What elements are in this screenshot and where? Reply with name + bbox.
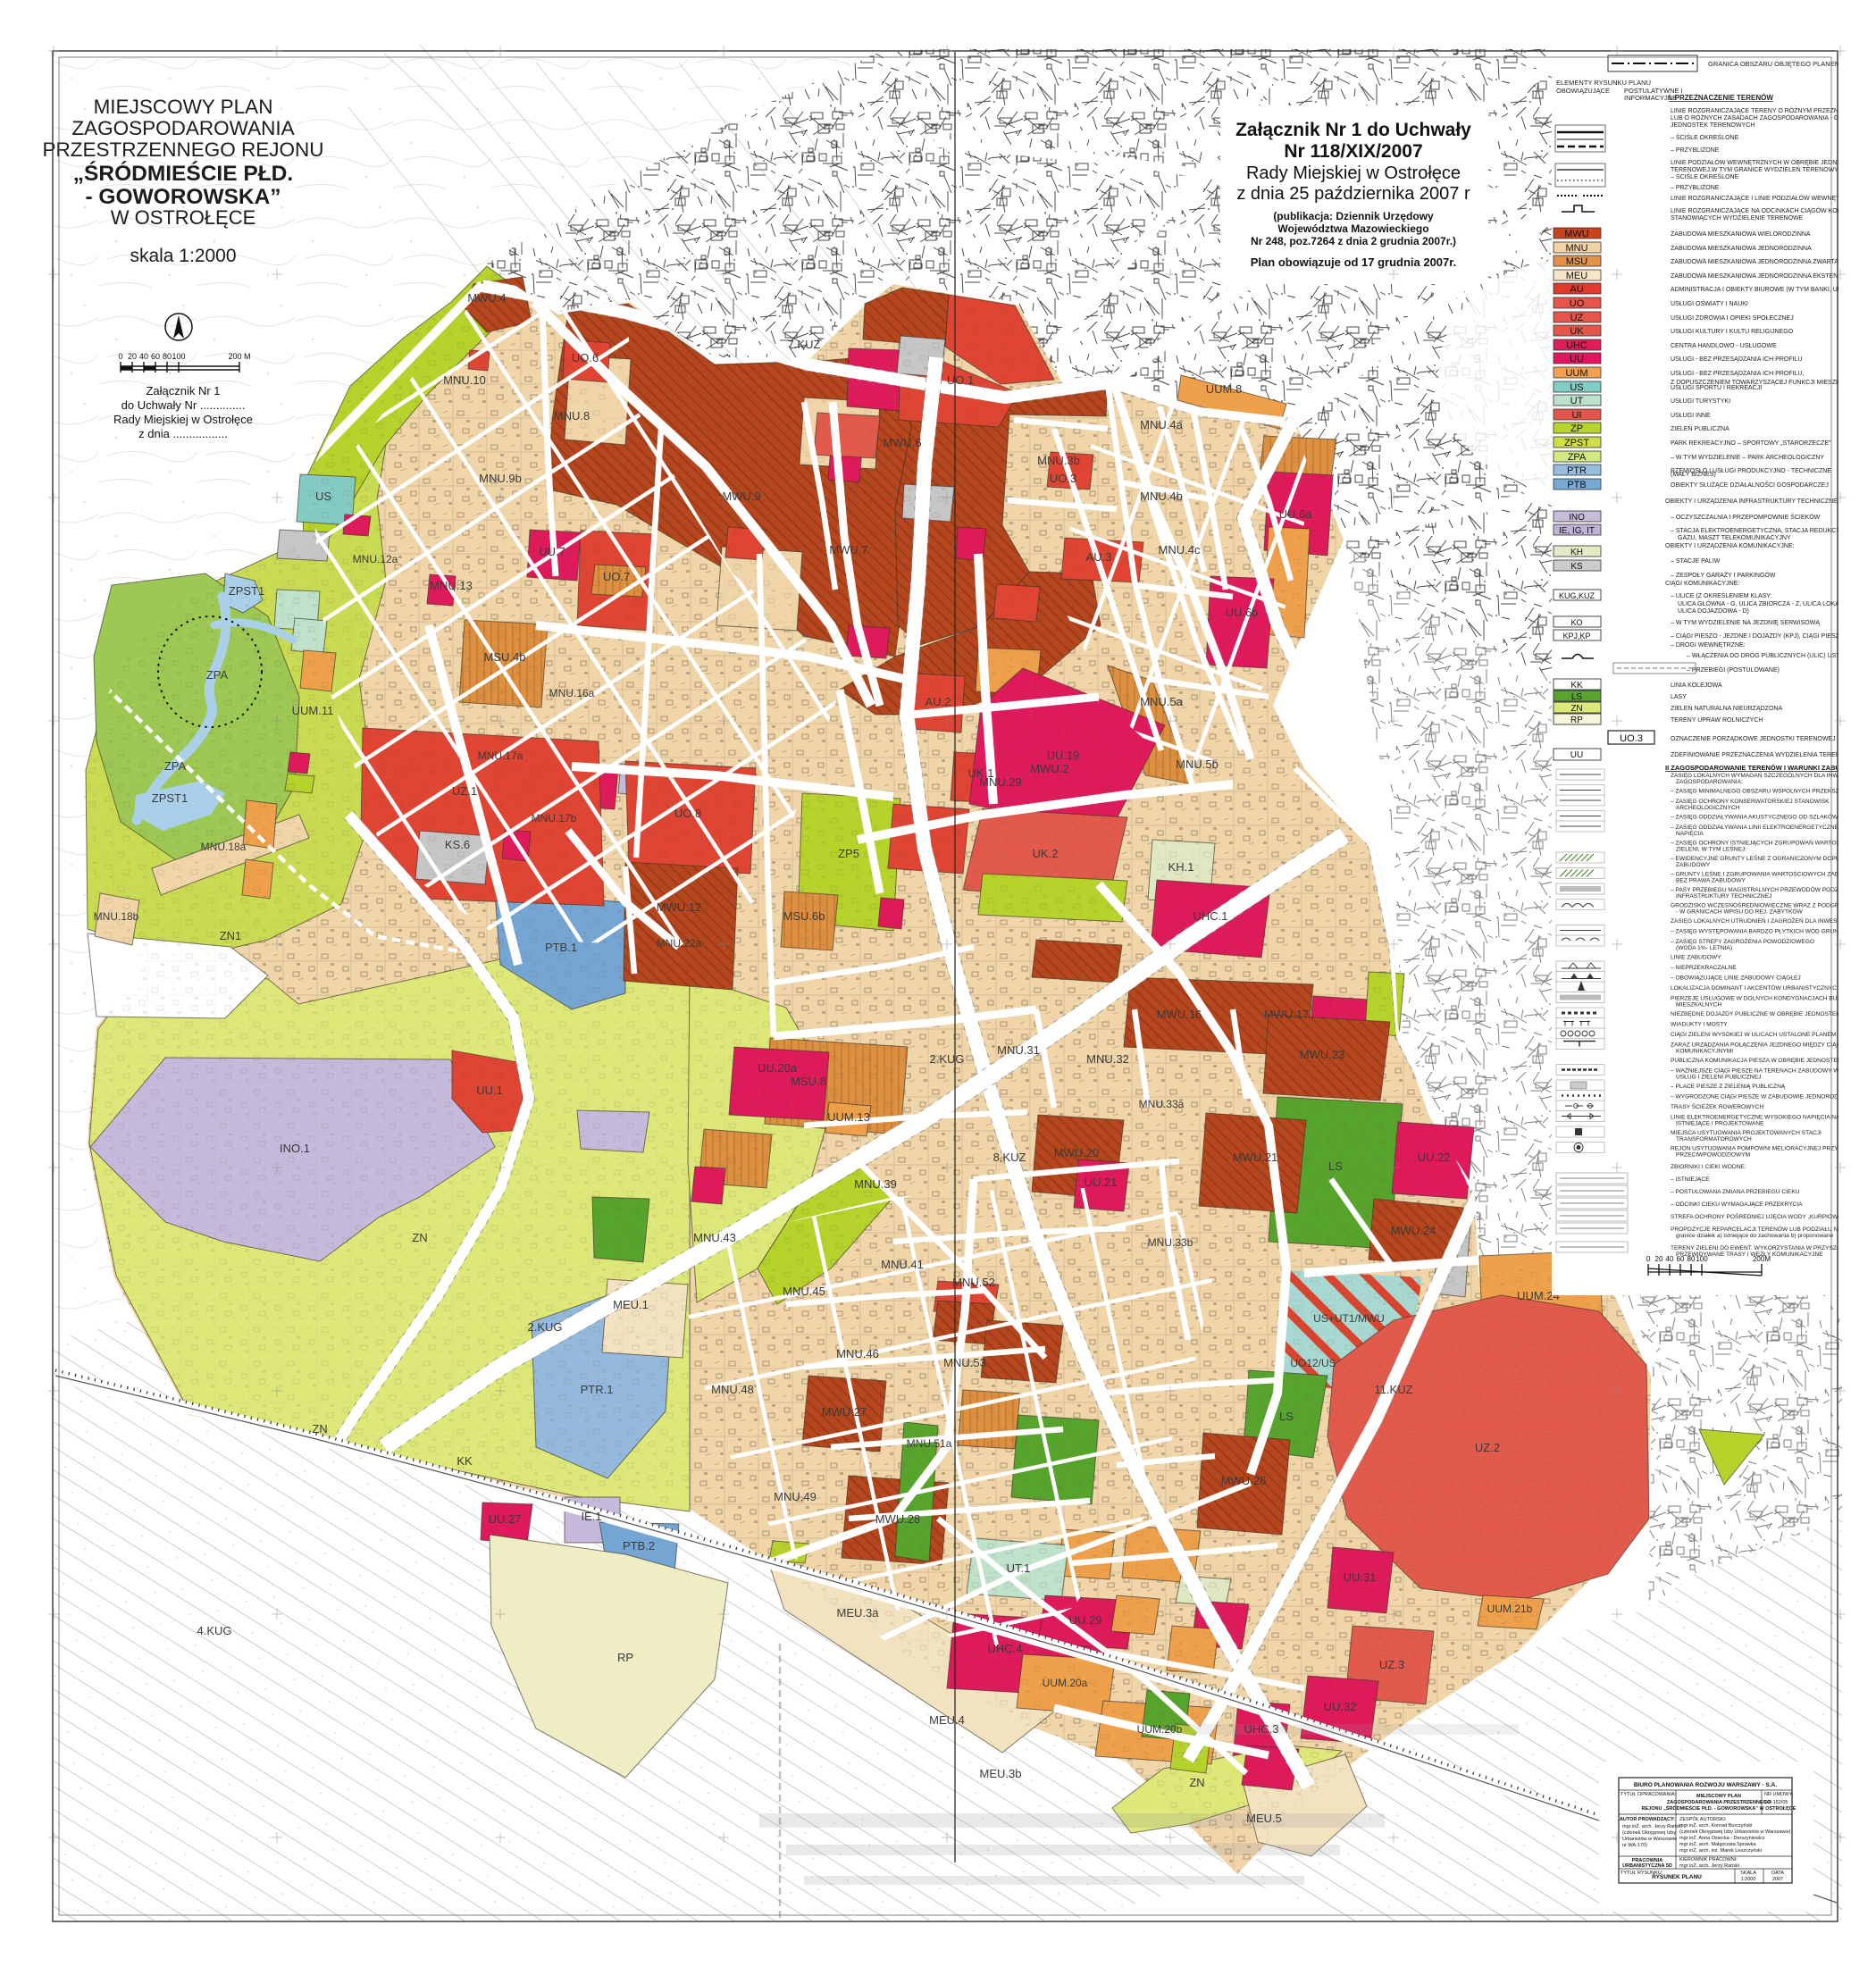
svg-text:UI: UI <box>1572 410 1582 421</box>
svg-text:– NIEPRZEKRACZALNE: – NIEPRZEKRACZALNE <box>1671 965 1737 971</box>
svg-text:UUM: UUM <box>1565 368 1587 379</box>
svg-text:USŁUGI SPORTU I REKREACJI: USŁUGI SPORTU I REKREACJI <box>1671 385 1762 391</box>
svg-text:PTR: PTR <box>1567 465 1587 476</box>
svg-text:LINIA KOLEJOWA: LINIA KOLEJOWA <box>1671 682 1722 689</box>
svg-text:Rady Miejskiej w Ostrołęce: Rady Miejskiej w Ostrołęce <box>1246 163 1461 183</box>
svg-text:ZN: ZN <box>1189 1776 1204 1789</box>
svg-text:ULICA GŁÓWNA - G, ULICA ZBIORC: ULICA GŁÓWNA - G, ULICA ZBIORCZA - Z, UL… <box>1678 599 1862 607</box>
svg-text:USŁUGI OŚWIATY I NAUKI: USŁUGI OŚWIATY I NAUKI <box>1671 299 1748 307</box>
svg-text:US+UT1/MWU: US+UT1/MWU <box>1313 1312 1385 1325</box>
svg-text:ISTNIEJĄCE I PROJEKTOWANE: ISTNIEJĄCE I PROJEKTOWANE <box>1676 1121 1764 1127</box>
svg-text:MWU.2: MWU.2 <box>1030 762 1068 775</box>
svg-text:UUM.11: UUM.11 <box>292 704 334 717</box>
svg-text:UHC: UHC <box>1566 340 1587 351</box>
svg-text:ZN: ZN <box>312 1422 327 1435</box>
svg-text:mgr inŻ. arch. Konrad Burczyńs: mgr inŻ. arch. Konrad Burczyński <box>1679 1822 1752 1829</box>
svg-text:ZP5: ZP5 <box>838 847 859 860</box>
svg-text:40: 40 <box>1666 1255 1674 1263</box>
svg-text:MNU.53: MNU.53 <box>943 1356 986 1369</box>
svg-text:(członek Okręgowej Izby: (członek Okręgowej Izby <box>1622 1830 1676 1836</box>
svg-text:GAZU, MASZT TELEKOMUNIKACYJNY: GAZU, MASZT TELEKOMUNIKACYJNY <box>1678 535 1791 541</box>
svg-text:nr WA-170): nr WA-170) <box>1622 1843 1647 1848</box>
svg-text:KH.1: KH.1 <box>1168 860 1194 874</box>
svg-text:CIĄGI ZIELENI WYSOKIEJ W ULICA: CIĄGI ZIELENI WYSOKIEJ W ULICACH USTALON… <box>1671 1032 1836 1038</box>
svg-text:Plan obowiązuje od 17 grudnia: Plan obowiązuje od 17 grudnia 2007r. <box>1251 255 1456 269</box>
svg-text:– ZASIĘG STREFY ZAGROŻENIA POW: – ZASIĘG STREFY ZAGROŻENIA POWODZIOWEGO <box>1671 937 1814 945</box>
svg-text:MNU.32: MNU.32 <box>1086 1052 1129 1066</box>
svg-text:– ŚCIŚLE OKREŚLONE: – ŚCIŚLE OKREŚLONE <box>1671 172 1739 180</box>
svg-text:– ULICE (Z OKREŚLENIEM KLASY:: – ULICE (Z OKREŚLENIEM KLASY: <box>1671 591 1772 599</box>
svg-text:USŁUGI TURYSTYKI: USŁUGI TURYSTYKI <box>1671 398 1730 405</box>
svg-text:UU: UU <box>1570 750 1583 760</box>
svg-text:1:2000: 1:2000 <box>1741 1877 1756 1882</box>
svg-text:LINIE ZABUDOWY:: LINIE ZABUDOWY: <box>1671 955 1722 961</box>
svg-text:ZASIĘG LOKALNYCH UTRUDNIEŃ I Z: ZASIĘG LOKALNYCH UTRUDNIEŃ I ZAGROŻEŃ DL… <box>1671 917 1864 925</box>
svg-text:– PRZYBLIŻONE: – PRZYBLIŻONE <box>1671 146 1720 154</box>
svg-text:– PRZEBIEGI (POSTULOWANE): – PRZEBIEGI (POSTULOWANE) <box>1687 667 1780 674</box>
svg-text:MNU.52: MNU.52 <box>952 1276 995 1289</box>
svg-text:KK: KK <box>1570 681 1583 691</box>
svg-text:ELEMENTY RYSUNKU PLANU: ELEMENTY RYSUNKU PLANU <box>1556 79 1651 87</box>
svg-text:NR UMOWY:: NR UMOWY: <box>1764 1792 1794 1797</box>
svg-text:KUG,KUZ: KUG,KUZ <box>1559 591 1595 600</box>
svg-text:RP: RP <box>617 1651 633 1664</box>
svg-text:ZIELEŃ NATURALNA NIEURZĄDZONA: ZIELEŃ NATURALNA NIEURZĄDZONA <box>1671 704 1782 712</box>
svg-text:UU.19: UU.19 <box>1047 749 1080 762</box>
svg-text:PTB.1: PTB.1 <box>545 941 577 954</box>
svg-text:MWU: MWU <box>1564 229 1589 239</box>
svg-text:MNU.33b: MNU.33b <box>1148 1236 1193 1249</box>
svg-text:INFRASTRUKTURY TECHNICZNEJ: INFRASTRUKTURY TECHNICZNEJ <box>1676 893 1771 900</box>
svg-text:80: 80 <box>1688 1255 1696 1263</box>
svg-text:PRZECIWPOWODZIOWYM: PRZECIWPOWODZIOWYM <box>1676 1152 1750 1159</box>
svg-text:UK: UK <box>1570 326 1584 337</box>
svg-text:MNU.4a: MNU.4a <box>1140 418 1183 431</box>
svg-text:– ZASIĘG OCHRONY KONSERWATORSK: – ZASIĘG OCHRONY KONSERWATORSKIEJ STANOW… <box>1671 799 1830 805</box>
svg-text:UT.1: UT.1 <box>1007 1561 1031 1575</box>
svg-text:ULICA DOJAZDOWA - D): ULICA DOJAZDOWA - D) <box>1678 608 1749 615</box>
svg-text:MNU.45: MNU.45 <box>783 1285 825 1298</box>
svg-text:SKALA: SKALA <box>1740 1871 1756 1876</box>
svg-text:UHC.3: UHC.3 <box>1244 1722 1278 1736</box>
svg-text:TERENOWEJ,W TYM GRANICE WYDZIE: TERENOWEJ,W TYM GRANICE WYDZIELEŃ TERENO… <box>1671 165 1849 173</box>
svg-text:ZPA: ZPA <box>206 668 229 682</box>
svg-text:MNU.4c: MNU.4c <box>1159 543 1201 557</box>
svg-text:granice działek a) istniejące: granice działek a) istniejące do zachowa… <box>1676 1233 1834 1239</box>
svg-text:LS: LS <box>1328 1159 1343 1173</box>
svg-text:UO.7: UO.7 <box>603 570 630 583</box>
svg-text:ZPA: ZPA <box>1568 452 1587 463</box>
svg-text:LINIE PODZIAŁÓW WEWNĘTRZNYCH W: LINIE PODZIAŁÓW WEWNĘTRZNYCH W OBRĘBIE J… <box>1671 158 1855 166</box>
svg-text:UUM.20b: UUM.20b <box>1137 1723 1183 1736</box>
svg-text:MWU.4: MWU.4 <box>467 291 506 305</box>
svg-text:– ZASIĘG WYSTĘPOWANIA BARDZO P: – ZASIĘG WYSTĘPOWANIA BARDZO PŁYTKICH WÓ… <box>1671 927 1864 935</box>
svg-text:0: 0 <box>118 352 122 361</box>
svg-text:USŁUGI KULTURY I KULTU RELIGIJ: USŁUGI KULTURY I KULTU RELIGIJNEGO <box>1671 329 1794 335</box>
svg-text:Załącznik Nr 1 do Uchwały: Załącznik Nr 1 do Uchwały <box>1235 120 1471 140</box>
svg-text:TRASY ŚCIEŻEK ROWEROWYCH: TRASY ŚCIEŻEK ROWEROWYCH <box>1671 1102 1764 1110</box>
svg-text:ZP: ZP <box>1570 423 1583 434</box>
svg-text:Urbanistów w Warszawie: Urbanistów w Warszawie <box>1622 1837 1677 1842</box>
svg-text:MNU.4b: MNU.4b <box>1140 490 1183 503</box>
svg-text:MWU.17: MWU.17 <box>1264 1008 1310 1021</box>
svg-text:MNU.3b: MNU.3b <box>1037 454 1080 467</box>
svg-text:– DROGI WEWNĘTRZNE:: – DROGI WEWNĘTRZNE: <box>1671 642 1746 649</box>
svg-text:ZPST: ZPST <box>1564 438 1589 448</box>
svg-text:STANOWIĄCYCH WYDZIELENIE TEREN: STANOWIĄCYCH WYDZIELENIE TERENOWE <box>1671 215 1804 222</box>
svg-text:MWU.16: MWU.16 <box>1157 1008 1202 1021</box>
svg-text:ZABUDOWA MIESZKANIOWA JEDNOROD: ZABUDOWA MIESZKANIOWA JEDNORODZINNA EKST… <box>1671 273 1861 280</box>
svg-text:mgr inŻ. arch. Małgorzata Spra: mgr inŻ. arch. Małgorzata Sprawka <box>1679 1841 1757 1847</box>
svg-text:MEU.5: MEU.5 <box>1246 1812 1282 1825</box>
svg-text:UT: UT <box>1570 396 1584 406</box>
svg-text:z dnia 25 października 2007 r: z dnia 25 października 2007 r <box>1236 184 1470 204</box>
svg-text:– OBOWIĄZUJĄCE LINIE ZABUDOWY: – OBOWIĄZUJĄCE LINIE ZABUDOWY CIĄGŁEJ <box>1671 975 1801 982</box>
svg-text:– W TYM WYDZIELENIE NA JEZDNIĘ: – W TYM WYDZIELENIE NA JEZDNIĘ SERWISOWĄ <box>1671 620 1820 626</box>
svg-text:– PASY PRZEBIEGU MAGISTRALNYCH: – PASY PRZEBIEGU MAGISTRALNYCH PRZEWODÓW… <box>1671 885 1866 893</box>
svg-text:(publikacja: Dziennik Urzędowy: (publikacja: Dziennik Urzędowy <box>1273 210 1434 222</box>
svg-text:ZABUDOWA MIESZKANIOWA WIELOROD: ZABUDOWA MIESZKANIOWA WIELORODZINNA <box>1671 231 1811 238</box>
svg-text:OBOWIĄZUJĄCE: OBOWIĄZUJĄCE <box>1556 87 1610 95</box>
svg-text:ZAGOSPODAROWANIA: ZAGOSPODAROWANIA <box>71 117 294 139</box>
svg-text:„ŚRÓDMIEŚCIE PŁD.: „ŚRÓDMIEŚCIE PŁD. <box>73 161 293 186</box>
svg-text:MNU: MNU <box>1565 243 1587 254</box>
svg-text:URBANISTYCZNA 5D: URBANISTYCZNA 5D <box>1622 1863 1672 1869</box>
svg-text:200 M: 200 M <box>228 352 250 361</box>
svg-text:REJONU „ŚRÓDMIEŚCIE PŁD. - GOW: REJONU „ŚRÓDMIEŚCIE PŁD. - GOWOROWSKA” W… <box>1642 1804 1796 1812</box>
svg-text:I. PRZEZNACZENIE TERENÓW: I. PRZEZNACZENIE TERENÓW <box>1669 94 1773 102</box>
svg-text:UU.6a: UU.6a <box>1279 507 1313 521</box>
svg-text:MNU.16a: MNU.16a <box>549 687 595 699</box>
svg-text:Załącznik Nr 1: Załącznik Nr 1 <box>146 384 220 398</box>
svg-text:STREFA OCHRONY POŚREDNIEJ UJĘC: STREFA OCHRONY POŚREDNIEJ UJĘCIA WODY „K… <box>1671 1212 1852 1220</box>
svg-text:UO.8: UO.8 <box>674 807 701 820</box>
svg-text:UU.27: UU.27 <box>489 1512 522 1526</box>
svg-text:MNU.46: MNU.46 <box>836 1347 879 1360</box>
svg-text:UU.31: UU.31 <box>1344 1570 1377 1584</box>
svg-text:USŁUGI ZDROWIA I OPIEKI SPOŁEC: USŁUGI ZDROWIA I OPIEKI SPOŁECZNEJ <box>1671 315 1794 322</box>
svg-text:UU.29: UU.29 <box>1069 1613 1102 1627</box>
svg-text:GRANICA OBSZARU OBJĘTEGO PLANE: GRANICA OBSZARU OBJĘTEGO PLANEM <box>1708 60 1840 68</box>
svg-text:MNU.51a: MNU.51a <box>907 1437 952 1450</box>
svg-text:PARK REKREACYJNO – SPORTOWY „S: PARK REKREACYJNO – SPORTOWY „STARORZECZE… <box>1671 440 1831 447</box>
svg-text:UZ.3: UZ.3 <box>1379 1658 1404 1671</box>
svg-text:MNU.41: MNU.41 <box>881 1258 924 1271</box>
svg-text:INO: INO <box>1569 513 1585 523</box>
svg-text:LASY: LASY <box>1671 694 1687 700</box>
svg-text:UU.22: UU.22 <box>1418 1151 1451 1164</box>
svg-text:PTB: PTB <box>1567 480 1586 490</box>
svg-text:UO.6: UO.6 <box>572 351 599 364</box>
svg-text:OBIEKTY SŁUŻĄCE DZIAŁALNOŚCI G: OBIEKTY SŁUŻĄCE DZIAŁALNOŚCI GOSPODARCZE… <box>1671 481 1829 489</box>
svg-text:ZARAZ URZĄDZANIA POŁĄCZENIA JE: ZARAZ URZĄDZANIA POŁĄCZENIA JEZDNEGO MIĘ… <box>1671 1042 1852 1049</box>
svg-text:OBIEKTY I URZĄDZENIA INFRASTRU: OBIEKTY I URZĄDZENIA INFRASTRUKTURY TECH… <box>1665 498 1842 505</box>
svg-text:MNU.22a: MNU.22a <box>657 937 702 950</box>
svg-text:INO.1: INO.1 <box>280 1142 310 1155</box>
svg-text:KH: KH <box>1570 548 1583 557</box>
svg-text:MWU.12: MWU.12 <box>657 900 702 914</box>
svg-text:– CIĄGI PIESZO - JEZDNE I DOJA: – CIĄGI PIESZO - JEZDNE I DOJAZDY (KPJ),… <box>1671 633 1858 640</box>
svg-text:UU.32: UU.32 <box>1324 1700 1357 1713</box>
svg-text:- GOWOROWSKA”: - GOWOROWSKA” <box>85 185 281 209</box>
svg-text:– STACJE PALIW: – STACJE PALIW <box>1671 558 1721 565</box>
svg-text:MNU.5a: MNU.5a <box>1140 695 1183 708</box>
svg-text:USŁUGI INNE: USŁUGI INNE <box>1671 413 1711 419</box>
svg-text:UU.6b: UU.6b <box>1226 606 1259 619</box>
svg-text:100: 100 <box>1696 1255 1708 1263</box>
svg-text:(WODA 1%- LETNIA): (WODA 1%- LETNIA) <box>1676 945 1732 951</box>
svg-text:Rady Miejskiej w Ostrołęce: Rady Miejskiej w Ostrołęce <box>113 413 253 426</box>
svg-text:UO12/US: UO12/US <box>1290 1357 1336 1369</box>
svg-text:100: 100 <box>172 352 185 361</box>
svg-text:ZIELENI, W TYM LEŚNEJ:: ZIELENI, W TYM LEŚNEJ: <box>1676 845 1746 853</box>
svg-text:NAPIĘCIA: NAPIĘCIA <box>1676 831 1704 837</box>
svg-text:MWU.23: MWU.23 <box>1300 1048 1345 1061</box>
svg-text:RP: RP <box>1570 716 1583 725</box>
svg-text:UUM.8: UUM.8 <box>1206 382 1242 396</box>
svg-text:UU.7: UU.7 <box>539 545 565 558</box>
svg-text:UU.21: UU.21 <box>1085 1176 1118 1189</box>
svg-text:MIESZKALNYCH: MIESZKALNYCH <box>1676 1002 1722 1009</box>
svg-text:MWU.27: MWU.27 <box>822 1405 867 1419</box>
svg-text:LS: LS <box>1571 692 1583 702</box>
svg-text:– ZASIĘG OCHRONY ISTNIEJĄCYCH: – ZASIĘG OCHRONY ISTNIEJĄCYCH ZGRUPOWAŃ … <box>1671 839 1863 847</box>
svg-text:MIEJSCOWY PLAN: MIEJSCOWY PLAN <box>94 96 273 118</box>
svg-text:UU.1: UU.1 <box>476 1084 503 1097</box>
svg-text:AU.3: AU.3 <box>1086 550 1112 564</box>
svg-text:MNU.49: MNU.49 <box>774 1490 817 1503</box>
svg-text:ZPST1: ZPST1 <box>152 791 188 805</box>
svg-text:PRZESTRZENNEGO REJONU: PRZESTRZENNEGO REJONU <box>42 138 323 161</box>
svg-text:MNU.5b: MNU.5b <box>1176 758 1219 771</box>
svg-text:MNU.12a: MNU.12a <box>353 553 398 565</box>
svg-text:ZDEFINIOWANIE PRZEZNACZENIA WY: ZDEFINIOWANIE PRZEZNACZENIA WYDZIELENIA … <box>1671 752 1865 758</box>
svg-text:MEU.3b: MEU.3b <box>980 1767 1022 1780</box>
svg-text:UHC.4: UHC.4 <box>987 1642 1022 1655</box>
svg-text:UUM.20a: UUM.20a <box>1043 1677 1088 1689</box>
svg-text:KS.6: KS.6 <box>445 838 470 851</box>
svg-text:MIEJSCA USYTUOWANIA PROJEKTOWA: MIEJSCA USYTUOWANIA PROJEKTOWANYCH STACJ… <box>1671 1130 1822 1136</box>
svg-text:MEU.3a: MEU.3a <box>837 1606 880 1620</box>
svg-text:– PLACE PIESZE Z ZIELENIĄ PUBL: – PLACE PIESZE Z ZIELENIĄ PUBLICZNĄ <box>1671 1084 1786 1090</box>
svg-text:MEU.1: MEU.1 <box>613 1298 649 1311</box>
svg-text:ZABUDOWA MIESZKANIOWA JEDNOROD: ZABUDOWA MIESZKANIOWA JEDNORODZINNA <box>1671 246 1812 252</box>
svg-text:MWU.28: MWU.28 <box>875 1512 921 1526</box>
svg-text:KIEROWNIK PRACOWNI:: KIEROWNIK PRACOWNI: <box>1679 1857 1738 1862</box>
svg-text:z dnia .................: z dnia ................. <box>138 427 228 440</box>
svg-text:MNU.33a: MNU.33a <box>1139 1098 1185 1110</box>
svg-text:– W TYM WYDZIELENIE – PARK ARC: – W TYM WYDZIELENIE – PARK ARCHEOLOGICZN… <box>1671 455 1824 461</box>
svg-text:mgr inŻ. arch. inż. Marek Lesz: mgr inŻ. arch. inż. Marek Leszczyński <box>1679 1847 1762 1854</box>
svg-text:2007: 2007 <box>1772 1877 1783 1882</box>
svg-text:60: 60 <box>151 352 160 361</box>
svg-text:UU.20a: UU.20a <box>758 1061 798 1075</box>
svg-text:20: 20 <box>1655 1255 1663 1263</box>
svg-text:ZN1: ZN1 <box>220 929 242 942</box>
svg-text:UO.3: UO.3 <box>1620 733 1643 744</box>
svg-text:AU.2: AU.2 <box>925 695 951 708</box>
svg-text:ZPA: ZPA <box>164 759 187 773</box>
svg-text:MIEJSCOWY PLAN: MIEJSCOWY PLAN <box>1696 1794 1741 1799</box>
svg-text:ZN: ZN <box>412 1231 427 1244</box>
svg-text:UZ.2: UZ.2 <box>1475 1441 1500 1454</box>
svg-text:MEU: MEU <box>1566 271 1588 281</box>
svg-text:ZABUDOWA MIESZKANIOWA JEDNOROD: ZABUDOWA MIESZKANIOWA JEDNORODZINNA ZWAR… <box>1671 259 1838 265</box>
svg-text:DATA: DATA <box>1771 1871 1784 1876</box>
svg-text:MNU.31: MNU.31 <box>997 1043 1040 1057</box>
svg-text:Nr 248, poz.7264 z dnia 2 grud: Nr 248, poz.7264 z dnia 2 grudnia 2007r.… <box>1251 235 1456 247</box>
svg-text:MSU.4b: MSU.4b <box>484 650 526 664</box>
svg-text:– ISTNIEJĄCE: – ISTNIEJĄCE <box>1671 1176 1710 1183</box>
svg-text:MNU.17b: MNU.17b <box>532 812 577 824</box>
svg-text:ZESPÓŁ AUTORSKI:: ZESPÓŁ AUTORSKI: <box>1679 1816 1727 1822</box>
svg-text:ZPST1: ZPST1 <box>229 584 264 598</box>
svg-text:TRANSFORMATOROWYCH: TRANSFORMATOROWYCH <box>1676 1136 1752 1143</box>
svg-text:– ŚCIŚLE OKREŚLONE: – ŚCIŚLE OKREŚLONE <box>1671 133 1739 141</box>
svg-text:MNU.48: MNU.48 <box>711 1383 754 1396</box>
svg-text:BIURO PLANOWANIA ROZWOJU WARSZ: BIURO PLANOWANIA ROZWOJU WARSZAWY - S.A. <box>1634 1782 1778 1788</box>
svg-text:TYTUŁ OPRACOWANIA:: TYTUŁ OPRACOWANIA: <box>1621 1792 1677 1797</box>
svg-text:8.KUZ: 8.KUZ <box>993 1151 1026 1164</box>
svg-text:TERENY UPRAW ROLNICZYCH: TERENY UPRAW ROLNICZYCH <box>1671 717 1763 724</box>
svg-text:IE, IG, IT: IE, IG, IT <box>1559 526 1595 536</box>
svg-text:0: 0 <box>1646 1255 1651 1263</box>
svg-text:MNU.18b: MNU.18b <box>94 910 139 923</box>
svg-text:40: 40 <box>139 352 148 361</box>
svg-text:- W GRANICACH WPISU DO REJ. ZA: - W GRANICACH WPISU DO REJ. ZABYTKÓW <box>1676 908 1804 916</box>
svg-text:MWU.26: MWU.26 <box>1221 1474 1267 1487</box>
svg-text:2.KUG: 2.KUG <box>929 1052 964 1066</box>
svg-text:MNU.43: MNU.43 <box>693 1231 736 1244</box>
svg-text:US: US <box>315 490 331 503</box>
svg-text:USŁUG I ZIELENI PUBLICZNEJ: USŁUG I ZIELENI PUBLICZNEJ <box>1676 1075 1761 1081</box>
svg-text:ZN: ZN <box>1570 704 1582 714</box>
svg-text:(MAŁY BIZNES): (MAŁY BIZNES) <box>1671 472 1716 478</box>
svg-text:MWU.6: MWU.6 <box>883 436 921 449</box>
svg-text:W OSTROŁĘCE: W OSTROŁĘCE <box>111 206 256 229</box>
svg-text:WIADUKTY I MOSTY: WIADUKTY I MOSTY <box>1671 1022 1728 1028</box>
svg-text:do Uchwały Nr ..............: do Uchwały Nr .............. <box>121 398 246 412</box>
svg-text:Nr 118/XIX/2007: Nr 118/XIX/2007 <box>1284 141 1422 162</box>
svg-text:LS: LS <box>1279 1410 1294 1423</box>
svg-text:ZBIORNIKI I CIEKI WODNE:: ZBIORNIKI I CIEKI WODNE: <box>1671 1164 1746 1170</box>
svg-text:KOMUNIKACYJNYMI: KOMUNIKACYJNYMI <box>1676 1049 1733 1055</box>
svg-text:ZAGOSPODAROWANIA PRZESTRZENNEG: ZAGOSPODAROWANIA PRZESTRZENNEGO <box>1667 1800 1771 1805</box>
svg-text:UK.1: UK.1 <box>968 766 994 780</box>
svg-text:MWU.7: MWU.7 <box>829 543 867 557</box>
svg-text:ARCHEOLOGICZNYCH: ARCHEOLOGICZNYCH <box>1676 805 1740 811</box>
svg-text:USŁUGI - BEZ PRZESĄDZANIA ICH: USŁUGI - BEZ PRZESĄDZANIA ICH PROFILU <box>1671 356 1802 363</box>
svg-text:200M: 200M <box>1753 1255 1771 1263</box>
svg-text:IE.1: IE.1 <box>581 1510 601 1523</box>
svg-text:mgr inŻ. Anna Osiecka - Derszy: mgr inŻ. Anna Osiecka - Derszyniewicz <box>1679 1835 1765 1841</box>
svg-text:Województwa Mazowieckiego: Województwa Mazowieckiego <box>1277 222 1428 235</box>
svg-text:UZ: UZ <box>1570 313 1584 323</box>
svg-text:UO: UO <box>1570 298 1585 309</box>
svg-text:MSU: MSU <box>1566 256 1588 267</box>
svg-text:US: US <box>1570 382 1583 393</box>
svg-text:4.KUG: 4.KUG <box>197 1624 231 1637</box>
svg-text:USŁUGI - BEZ PRZESĄDZANIA ICH: USŁUGI - BEZ PRZESĄDZANIA ICH PROFILU, <box>1671 371 1804 377</box>
svg-text:60: 60 <box>1677 1255 1685 1263</box>
svg-text:MWU.20: MWU.20 <box>1054 1146 1100 1159</box>
svg-text:JEDNOSTEK TERENOWYCH: JEDNOSTEK TERENOWYCH <box>1671 122 1755 129</box>
svg-text:MSU.6b: MSU.6b <box>783 909 825 923</box>
svg-text:ZIELEŃ PUBLICZNA: ZIELEŃ PUBLICZNA <box>1671 424 1729 432</box>
svg-text:KO: KO <box>1570 618 1582 627</box>
svg-text:UO.1: UO.1 <box>947 373 974 387</box>
svg-text:PTB.2: PTB.2 <box>623 1539 655 1553</box>
svg-text:MNU.39: MNU.39 <box>854 1177 897 1191</box>
svg-text:20: 20 <box>128 352 137 361</box>
svg-text:– ODCINKI CIEKU WYMAGAJĄCE PRZ: – ODCINKI CIEKU WYMAGAJĄCE PRZEKRYCIA <box>1671 1201 1803 1208</box>
svg-text:GRODZISKO WCZESNOŚREDNIOWIECZN: GRODZISKO WCZESNOŚREDNIOWIECZNE WRAZ Z P… <box>1671 901 1862 909</box>
svg-text:UU: UU <box>1570 354 1584 364</box>
svg-text:LOKALIZACJA DOMINANT I AKCENTÓ: LOKALIZACJA DOMINANT I AKCENTÓW URBANIST… <box>1671 983 1841 992</box>
svg-text:7.KUZ: 7.KUZ <box>788 338 821 351</box>
svg-text:UHC.1: UHC.1 <box>1193 909 1227 923</box>
svg-text:(członek Okręgowej Izby Urbani: (członek Okręgowej Izby Urbanistów w War… <box>1679 1829 1791 1835</box>
svg-text:MNU.13: MNU.13 <box>430 579 473 592</box>
svg-text:MNU.17a: MNU.17a <box>478 749 523 762</box>
svg-text:mgr inŻ. arch. Jerzy Rański: mgr inŻ. arch. Jerzy Rański <box>1679 1862 1739 1869</box>
svg-text:PIERZEJE USŁUGOWE W DOLNYCH KO: PIERZEJE USŁUGOWE W DOLNYCH KONDYGNACJAC… <box>1671 994 1864 1002</box>
svg-text:RYSUNEK PLANU: RYSUNEK PLANU <box>1652 1874 1702 1880</box>
svg-text:BEZ PRAWA ZABUDOWY: BEZ PRAWA ZABUDOWY <box>1676 878 1746 884</box>
svg-text:LINIE ROZGRANICZAJĄCE TERENY O: LINIE ROZGRANICZAJĄCE TERENY O RÓŻNYM PR… <box>1671 106 1866 114</box>
svg-text:CIĄGI KOMUNIKACYJNE:: CIĄGI KOMUNIKACYJNE: <box>1665 581 1739 587</box>
svg-text:UZ.1: UZ.1 <box>452 784 477 798</box>
svg-text:UUM.21b: UUM.21b <box>1487 1603 1533 1615</box>
svg-text:mgr inŻ. arch. Jerzy Rański: mgr inŻ. arch. Jerzy Rański <box>1622 1823 1682 1829</box>
svg-text:OBIEKTY I URZĄDZENIA KOMUNIKAC: OBIEKTY I URZĄDZENIA KOMUNIKACYJNE: <box>1665 543 1795 549</box>
svg-text:CENTRA HANDLOWO - USŁUGOWE: CENTRA HANDLOWO - USŁUGOWE <box>1671 343 1777 349</box>
svg-text:– WYGRODZONE CIĄGI PIESZE W ZA: – WYGRODZONE CIĄGI PIESZE W ZABUDOWIE JE… <box>1671 1094 1859 1101</box>
svg-text:skala 1:2000: skala 1:2000 <box>130 246 236 266</box>
svg-text:MEU.4: MEU.4 <box>929 1713 965 1727</box>
svg-text:– ZESPOŁY GARAŻY I PARKINGÓW: – ZESPOŁY GARAŻY I PARKINGÓW <box>1671 571 1776 579</box>
svg-text:PTR.1: PTR.1 <box>581 1383 614 1396</box>
svg-text:MWU.9: MWU.9 <box>722 490 760 503</box>
svg-text:MWU.24: MWU.24 <box>1391 1224 1436 1237</box>
svg-text:MWU.21: MWU.21 <box>1233 1151 1278 1164</box>
svg-text:MSU.8: MSU.8 <box>791 1075 826 1088</box>
svg-text:– OCZYSZCZALNIA I PRZEPOMPOWNI: – OCZYSZCZALNIA I PRZEPOMPOWNIE ŚCIEKÓW <box>1671 513 1821 521</box>
svg-text:UO.3: UO.3 <box>1050 472 1076 485</box>
svg-text:MNU.10: MNU.10 <box>443 373 486 387</box>
svg-text:LUB O RÓŻNYCH ZASADACH ZAGOSPO: LUB O RÓŻNYCH ZASADACH ZAGOSPODAROWANIA … <box>1671 113 1863 121</box>
svg-text:AU: AU <box>1570 284 1583 295</box>
svg-text:– POSTULOWANA ZMIANA PRZEBIEGU: – POSTULOWANA ZMIANA PRZEBIEGU CIEKU <box>1671 1189 1800 1195</box>
svg-text:ZABUDOWY: ZABUDOWY <box>1676 862 1711 868</box>
svg-text:MNU.8: MNU.8 <box>554 409 590 423</box>
svg-text:2.KUG: 2.KUG <box>527 1320 562 1334</box>
svg-text:OZNACZENIE PORZĄDKOWE JEDNOSTK: OZNACZENIE PORZĄDKOWE JEDNOSTKI TERENOWE… <box>1671 736 1836 742</box>
svg-text:SM-152/05: SM-152/05 <box>1764 1800 1788 1805</box>
svg-text:– ZASIĘG MINIMALNEGO OBSZARU W: – ZASIĘG MINIMALNEGO OBSZARU WSPÓLNYCH P… <box>1671 787 1862 795</box>
svg-text:UK.2: UK.2 <box>1033 847 1059 860</box>
svg-text:KPJ,KP: KPJ,KP <box>1562 632 1590 640</box>
svg-text:80: 80 <box>163 352 172 361</box>
svg-text:– PRZYBLIŻONE: – PRZYBLIŻONE <box>1671 183 1720 191</box>
svg-text:KK: KK <box>456 1454 473 1468</box>
svg-text:MNU.18a: MNU.18a <box>201 841 247 853</box>
svg-text:KS: KS <box>1570 562 1583 572</box>
svg-text:MNU.9b: MNU.9b <box>479 472 522 485</box>
svg-text:UUM.13: UUM.13 <box>827 1110 870 1124</box>
svg-text:REJON USYTUOWANIA POMPOWNI MEL: REJON USYTUOWANIA POMPOWNI MELIORACYJNEJ… <box>1671 1146 1856 1152</box>
svg-text:ZAGOSPODAROWANIA:: ZAGOSPODAROWANIA: <box>1676 779 1743 785</box>
